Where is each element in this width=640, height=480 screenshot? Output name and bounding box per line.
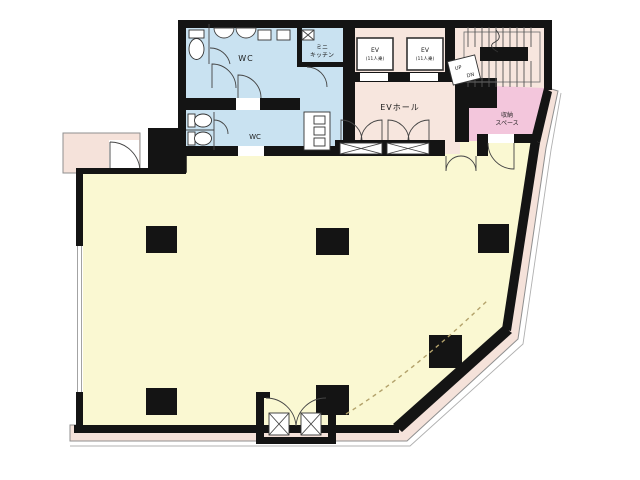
alcove-door-gap: [109, 140, 139, 172]
sink-unit: [277, 30, 290, 40]
counter-basin: [314, 116, 325, 124]
storage-door-gap: [488, 134, 514, 143]
wc-upper-label: WC: [238, 54, 254, 63]
storage-label-line1: 収納: [501, 111, 513, 119]
kitchen-bottom-wall: [297, 62, 343, 67]
bottom-wall: [74, 425, 399, 433]
mini-kitchen-label-line2: キッチン: [310, 52, 334, 59]
elevator-1-label-line2: (11人乗): [366, 55, 385, 62]
mini-kitchen-label-line1: ミニ: [316, 44, 328, 51]
counter-basin: [314, 138, 325, 146]
elevator-2-label-line2: (11人乗): [416, 55, 435, 62]
top-wall: [178, 20, 552, 28]
column: [146, 388, 177, 415]
storage-door-stub: [477, 140, 488, 156]
sink-unit: [258, 30, 271, 40]
elevator-cab: [357, 38, 393, 70]
toilet-bowl: [195, 132, 212, 145]
stair-storage-wall-b: [469, 78, 497, 108]
elevator-2-label-line1: EV: [421, 47, 430, 54]
shaft-right-wall: [328, 392, 336, 444]
storage-label-line2: スペース: [495, 120, 518, 127]
corner-block: [148, 128, 186, 174]
left-wall-upper: [76, 168, 83, 246]
column: [478, 224, 509, 253]
kitchen-left-wall: [297, 24, 302, 66]
wc-divider-gap: [236, 98, 260, 110]
shaft-bottom-wall: [256, 437, 336, 444]
ev2-door-gap: [410, 73, 438, 81]
shaft-top-stub: [322, 392, 336, 398]
toilet-tank: [188, 132, 195, 145]
elevator-1-label-line1: EV: [371, 47, 380, 54]
ev-hall-label: EVホール: [380, 103, 420, 112]
entrance-alcove: [63, 133, 140, 173]
main-topleft-wall: [76, 168, 150, 174]
toilet-tank: [188, 114, 195, 127]
wc-lower-label: WC: [249, 133, 261, 141]
wc-ev-wall: [343, 20, 355, 156]
floor-plan-canvas: UP DN WC WC ミニ キッチン EV (11人乗) EV (11人乗) …: [0, 0, 640, 480]
shaft-top-stub: [256, 392, 270, 398]
ev1-door-gap: [360, 73, 388, 81]
counter-basin: [314, 127, 325, 135]
toilet-tank: [189, 30, 204, 38]
column: [316, 228, 349, 255]
wc-entry-gap: [238, 146, 264, 156]
stair-landing-bar: [480, 47, 528, 61]
toilet-bowl: [189, 39, 204, 60]
stair-storage-wall-a: [455, 78, 469, 142]
toilet-bowl: [195, 114, 212, 127]
stair-right-wall: [544, 20, 552, 90]
column: [146, 226, 177, 253]
column: [429, 335, 462, 368]
elevator-cab: [407, 38, 443, 70]
shaft-left-wall: [256, 392, 264, 444]
